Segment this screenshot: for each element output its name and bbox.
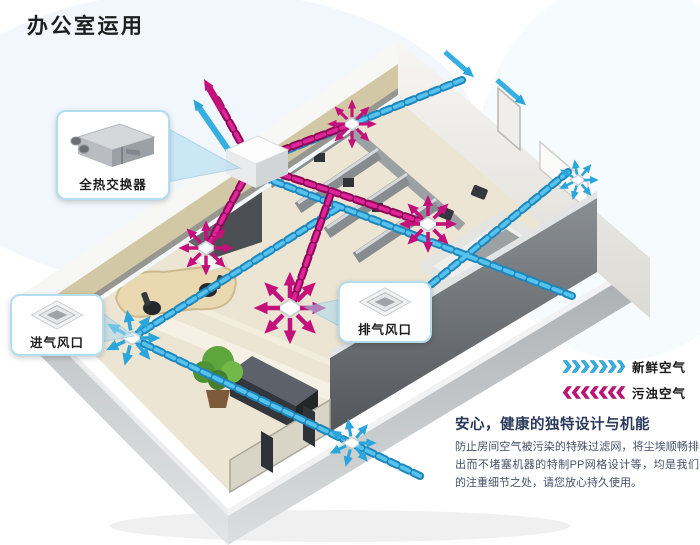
intake-vent-callout: 进气风口: [10, 294, 104, 356]
heat-exchanger-image: [64, 117, 162, 173]
intake-vent-label: 进气风口: [30, 332, 84, 351]
heat-exchanger-callout: 全热交换器: [56, 110, 170, 200]
fresh-air-arrows-icon: [563, 360, 625, 373]
heat-exchanger-label: 全热交换器: [79, 174, 147, 193]
description-body: 防止房间空气被污染的特殊过滤网，将尘埃顺畅排出而不堵塞机器的特制PP网格设计等，…: [455, 439, 699, 492]
fresh-air-label: 新鲜空气: [632, 357, 686, 376]
legend-item-polluted-air: 污浊空气: [563, 383, 686, 402]
description-heading: 安心，健康的独特设计与机能: [455, 413, 699, 434]
page-title: 办公室运用: [27, 10, 145, 40]
page: 办公室运用: [0, 0, 700, 545]
ceiling-diffuser-image: [28, 299, 86, 331]
description-block: 安心，健康的独特设计与机能 防止房间空气被污染的特殊过滤网，将尘埃顺畅排出而不堵…: [455, 413, 699, 492]
exhaust-vent-label: 排气风口: [358, 319, 412, 338]
polluted-air-arrows-icon: [563, 386, 625, 399]
legend: 新鲜空气 污浊空气: [563, 357, 686, 402]
exhaust-vent-callout: 排气风口: [338, 281, 432, 343]
ceiling-diffuser-image: [356, 286, 414, 318]
polluted-air-label: 污浊空气: [632, 383, 686, 402]
building-shadow: [110, 510, 570, 542]
legend-item-fresh-air: 新鲜空气: [563, 357, 686, 376]
